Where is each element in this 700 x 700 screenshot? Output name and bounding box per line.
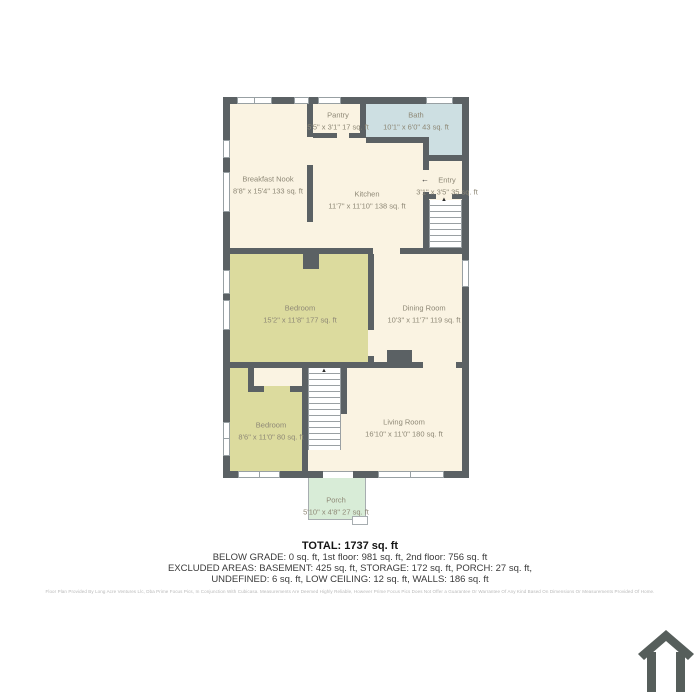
window: [223, 438, 230, 456]
wall-breakfast-kitchen-lower: [307, 165, 313, 222]
wall-mid-horizontal-right: [400, 248, 462, 254]
window: [426, 97, 453, 104]
room-dims: 10'1" x 6'0" 43 sq. ft: [383, 121, 449, 133]
window: [294, 97, 309, 104]
room-dims: 8'6" x 11'0" 80 sq. ft: [238, 431, 303, 443]
window: [254, 97, 272, 104]
outer-wall-right: [462, 97, 469, 478]
wall-dining-living-stub: [456, 362, 462, 368]
room-label-porch: Porch 5'10" x 4'8" 27 sq. ft: [303, 494, 369, 517]
room-name: Bedroom: [238, 419, 303, 431]
window: [318, 97, 341, 104]
wall-bath-bottom-left: [366, 137, 429, 143]
room-name: Dining Room: [388, 302, 461, 314]
closet-fill: [254, 368, 302, 386]
room-label-kitchen: Kitchen 11'7" x 11'10" 138 sq. ft: [328, 188, 405, 211]
summary-line-1: BELOW GRADE: 0 sq. ft, 1st floor: 981 sq…: [0, 552, 700, 563]
summary-line-3: UNDEFINED: 6 sq. ft, LOW CEILING: 12 sq.…: [0, 574, 700, 585]
room-dims: 16'10" x 11'0" 180 sq. ft: [365, 428, 443, 440]
room-dims: 5'5" x 3'1" 17 sq. ft: [307, 121, 369, 133]
floor-plan-page: ← ▲ ▲ Pantry 5'5" x 3'1" 17 sq. ft Bath …: [0, 0, 700, 700]
window: [462, 260, 469, 287]
room-label-breakfast-nook: Breakfast Nook 8'8" x 15'4" 133 sq. ft: [233, 173, 303, 196]
area-summary: TOTAL: 1737 sq. ft BELOW GRADE: 0 sq. ft…: [0, 540, 700, 594]
room-name: Breakfast Nook: [233, 173, 303, 185]
window: [223, 172, 230, 212]
room-dims: 5'10" x 4'8" 27 sq. ft: [303, 506, 369, 518]
wall-mid-horizontal-left: [223, 248, 373, 254]
room-label-bath: Bath 10'1" x 6'0" 43 sq. ft: [383, 109, 449, 132]
wall-bedroom1-bottom: [223, 362, 373, 368]
summary-line-2: EXCLUDED AREAS: BASEMENT: 425 sq. ft, ST…: [0, 563, 700, 574]
room-dims: 11'7" x 11'10" 138 sq. ft: [328, 200, 405, 212]
bath-notch-fill: [366, 143, 423, 157]
room-name: Pantry: [307, 109, 369, 121]
stairs-up-arrow-lower: ▲: [321, 368, 327, 374]
room-label-dining-room: Dining Room 10'3" x 11'7" 119 sq. ft: [388, 302, 461, 325]
wall-pantry-bottom-a: [313, 133, 337, 138]
window: [410, 471, 444, 478]
room-name: Bath: [383, 109, 449, 121]
room-label-bedroom-small: Bedroom 8'6" x 11'0" 80 sq. ft: [238, 419, 303, 442]
wall-bedroom1-dining-upper: [368, 254, 374, 330]
window: [223, 422, 230, 439]
wall-kitchen-entry-upper: [423, 137, 429, 170]
wall-stairs-right: [341, 368, 347, 414]
room-label-pantry: Pantry 5'5" x 3'1" 17 sq. ft: [307, 109, 369, 132]
porch-door-opening: [323, 471, 353, 478]
stairs-upper: [429, 200, 462, 248]
house-icon: [638, 626, 694, 696]
total-area-text: TOTAL: 1737 sq. ft: [0, 540, 700, 552]
room-label-bedroom-large: Bedroom 15'2" x 11'8" 177 sq. ft: [263, 302, 337, 325]
window: [259, 471, 280, 478]
room-dims: 3'1" x 3'5" 35 sq. ft: [416, 186, 478, 198]
window: [238, 471, 260, 478]
window: [223, 300, 230, 330]
room-dims: 8'8" x 15'4" 133 sq. ft: [233, 185, 303, 197]
wall-pantry-bottom-b: [349, 133, 360, 138]
fireplace-block: [387, 350, 412, 368]
room-name: Living Room: [365, 416, 443, 428]
room-label-entry: Entry 3'1" x 3'5" 35 sq. ft: [416, 174, 478, 197]
room-name: Kitchen: [328, 188, 405, 200]
room-label-living-room: Living Room 16'10" x 11'0" 180 sq. ft: [365, 416, 443, 439]
disclaimer-text: Floor Plan Provided By Long Acre Venture…: [0, 589, 700, 594]
stairs-lower: [308, 368, 341, 450]
room-name: Bedroom: [263, 302, 337, 314]
room-dims: 10'3" x 11'7" 119 sq. ft: [388, 314, 461, 326]
chimney-block: [303, 254, 319, 269]
window: [223, 270, 230, 294]
wall-bath-bottom-right: [429, 155, 462, 161]
room-dims: 15'2" x 11'8" 177 sq. ft: [263, 314, 337, 326]
stairs-up-arrow-upper: ▲: [441, 197, 447, 203]
wall-closet-horizontal-a: [248, 386, 264, 392]
window: [223, 140, 230, 158]
room-name: Entry: [416, 174, 478, 186]
room-name: Porch: [303, 494, 369, 506]
window: [237, 97, 255, 104]
window: [378, 471, 411, 478]
